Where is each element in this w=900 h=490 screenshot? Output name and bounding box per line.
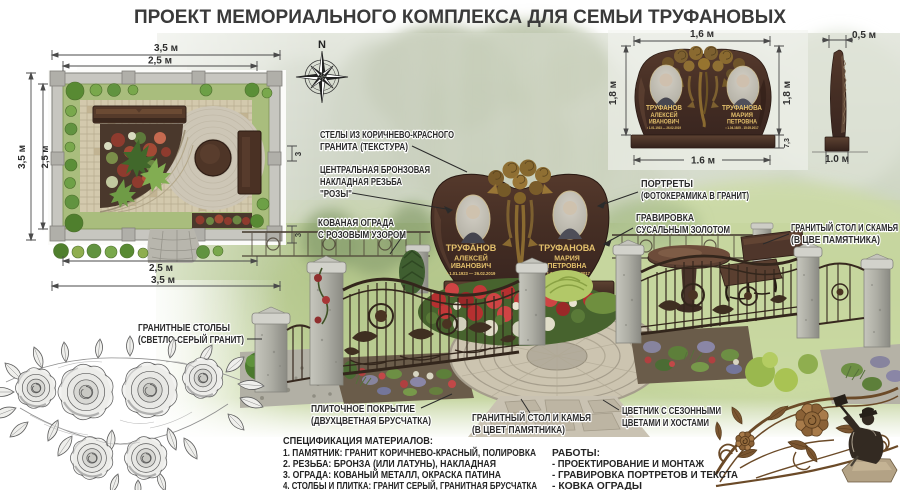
svg-text:• 1.01.1923 — 26.02.2019: • 1.01.1923 — 26.02.2019 bbox=[447, 271, 496, 276]
svg-text:(В ЦВЕ ПАМЯТНИКА): (В ЦВЕ ПАМЯТНИКА) bbox=[791, 235, 880, 246]
svg-text:- КОВКА ОГРАДЫ: - КОВКА ОГРАДЫ bbox=[552, 481, 642, 490]
svg-text:4. СТОЛБЫ И ПЛИТКА: ГРАНИТ СЕР: 4. СТОЛБЫ И ПЛИТКА: ГРАНИТ СЕРЫЙ, ГРАНИТ… bbox=[283, 479, 537, 490]
svg-text:1,8 м: 1,8 м bbox=[782, 81, 793, 105]
svg-text:ТРУФАНОВ: ТРУФАНОВ bbox=[646, 103, 682, 112]
svg-text:ТРУФАНОВА: ТРУФАНОВА bbox=[722, 103, 762, 112]
svg-text:ПЕТРОВНА: ПЕТРОВНА bbox=[727, 120, 758, 126]
svg-text:7,3: 7,3 bbox=[784, 138, 791, 148]
svg-text:(СВЕТЛО-СЕРЫЙ ГРАНИТ): (СВЕТЛО-СЕРЫЙ ГРАНИТ) bbox=[138, 333, 244, 346]
svg-text:ГРАНИТНЫЙ СТОЛ И КАМЬЯ: ГРАНИТНЫЙ СТОЛ И КАМЬЯ bbox=[472, 411, 591, 424]
svg-text:ГРАНИТНЫЕ СТОЛБЫ: ГРАНИТНЫЕ СТОЛБЫ bbox=[138, 323, 230, 334]
svg-text:1,6 м: 1,6 м bbox=[690, 29, 714, 40]
svg-text:ЦЕНТРАЛЬНАЯ БРОНЗОВАЯ: ЦЕНТРАЛЬНАЯ БРОНЗОВАЯ bbox=[320, 165, 430, 176]
svg-text:"РОЗЫ": "РОЗЫ" bbox=[320, 189, 352, 200]
svg-text:3: 3 bbox=[294, 151, 303, 156]
svg-text:РАБОТЫ:: РАБОТЫ: bbox=[552, 448, 600, 459]
svg-text:3,5 м: 3,5 м bbox=[151, 275, 175, 286]
svg-text:ТРУФАНОВ: ТРУФАНОВ bbox=[446, 243, 497, 253]
svg-text:МАРИЯ: МАРИЯ bbox=[554, 256, 580, 263]
svg-text:2,5 м: 2,5 м bbox=[148, 56, 172, 67]
svg-text:3. ОГРАДА: КОВАНЫЙ МЕТАЛЛ, ОКР: 3. ОГРАДА: КОВАНЫЙ МЕТАЛЛ, ОКРАСКА ПАТИН… bbox=[283, 468, 501, 481]
svg-text:- ГРАВИРОВКА ПОРТРЕТОВ И ТЕКСТ: - ГРАВИРОВКА ПОРТРЕТОВ И ТЕКСТА bbox=[552, 470, 738, 481]
svg-text:ИВАНОВИЧ: ИВАНОВИЧ bbox=[451, 263, 491, 270]
svg-text:ЦВЕТНИК С СЕЗОННЫМИ: ЦВЕТНИК С СЕЗОННЫМИ bbox=[622, 406, 721, 417]
svg-text:СУСАЛЬНЫМ ЗОЛОТОМ: СУСАЛЬНЫМ ЗОЛОТОМ bbox=[636, 225, 730, 236]
svg-text:N: N bbox=[318, 39, 326, 51]
svg-text:С РОЗОВЫМ УЗОРОМ: С РОЗОВЫМ УЗОРОМ bbox=[318, 230, 406, 241]
svg-text:ТРУФАНОВА: ТРУФАНОВА bbox=[539, 243, 596, 253]
svg-text:ЦВЕТАМИ И ХОСТАМИ: ЦВЕТАМИ И ХОСТАМИ bbox=[622, 418, 709, 429]
svg-text:2,5 м: 2,5 м bbox=[40, 146, 51, 169]
svg-text:АЛЕКСЕЙ: АЛЕКСЕЙ bbox=[454, 254, 488, 263]
svg-text:2. РЕЗЬБА: БРОНЗА (ИЛИ ЛАТУНЬ): 2. РЕЗЬБА: БРОНЗА (ИЛИ ЛАТУНЬ), НАКЛАДНА… bbox=[283, 459, 496, 470]
svg-text:(ДВУХЦВЕТНАЯ БРУСЧАТКА): (ДВУХЦВЕТНАЯ БРУСЧАТКА) bbox=[311, 416, 431, 427]
svg-text:1,8 м: 1,8 м bbox=[608, 81, 619, 105]
svg-text:3,5 м: 3,5 м bbox=[17, 145, 28, 169]
svg-text:ПОРТРЕТЫ: ПОРТРЕТЫ bbox=[641, 179, 693, 190]
svg-text:ПЕТРОВНА: ПЕТРОВНА bbox=[547, 263, 586, 270]
svg-text:1. ПАМЯТНИК: ГРАНИТ КОРИЧНЕВО-: 1. ПАМЯТНИК: ГРАНИТ КОРИЧНЕВО-КРАСНЫЙ, П… bbox=[283, 446, 536, 459]
svg-text:АЛЕКСЕЙ: АЛЕКСЕЙ bbox=[651, 111, 678, 119]
svg-text:0,5 м: 0,5 м bbox=[852, 30, 876, 41]
svg-text:ГРАВИРОВКА: ГРАВИРОВКА bbox=[636, 213, 694, 224]
svg-text:1.0 м: 1.0 м bbox=[825, 154, 849, 165]
svg-text:ГРАНИТА (ТЕКСТУРА): ГРАНИТА (ТЕКСТУРА) bbox=[320, 142, 408, 153]
svg-text:НАКЛАДНАЯ РЕЗЬБА: НАКЛАДНАЯ РЕЗЬБА bbox=[320, 177, 402, 188]
svg-text:• 1.04.1925 - 15.05.2017: • 1.04.1925 - 15.05.2017 bbox=[726, 126, 759, 130]
svg-text:СТЕЛЫ ИЗ КОРИЧНЕВО-КРАСНОГО: СТЕЛЫ ИЗ КОРИЧНЕВО-КРАСНОГО bbox=[320, 130, 454, 141]
svg-text:- ПРОЕКТИРОВАНИЕ И МОНТАЖ: - ПРОЕКТИРОВАНИЕ И МОНТАЖ bbox=[552, 459, 705, 470]
svg-text:ГРАНИТЫЙ СТОЛ И СКАМЬЯ: ГРАНИТЫЙ СТОЛ И СКАМЬЯ bbox=[791, 221, 898, 234]
svg-text:1.6 м: 1.6 м bbox=[691, 156, 715, 167]
svg-text:2,5 м: 2,5 м bbox=[149, 263, 173, 274]
svg-text:(ФОТОКЕРАМИКА В ГРАНИТ): (ФОТОКЕРАМИКА В ГРАНИТ) bbox=[641, 191, 749, 202]
svg-text:СПЕЦИФИКАЦИЯ МАТЕРИАЛОВ:: СПЕЦИФИКАЦИЯ МАТЕРИАЛОВ: bbox=[283, 436, 433, 447]
svg-text:КОВАНАЯ ОГРАДА: КОВАНАЯ ОГРАДА bbox=[318, 218, 394, 229]
svg-text:ПЛИТОЧНОЕ ПОКРЫТИЕ: ПЛИТОЧНОЕ ПОКРЫТИЕ bbox=[311, 404, 415, 415]
svg-text:(В ЦВЕТ ПАМЯТНИКА): (В ЦВЕТ ПАМЯТНИКА) bbox=[472, 425, 565, 436]
svg-text:МАРИЯ: МАРИЯ bbox=[731, 113, 753, 119]
svg-text:ПРОЕКТ МЕМОРИАЛЬНОГО КОМПЛЕКСА: ПРОЕКТ МЕМОРИАЛЬНОГО КОМПЛЕКСА ДЛЯ СЕМЬИ… bbox=[134, 7, 786, 28]
svg-text:ИВАНОВИЧ: ИВАНОВИЧ bbox=[649, 120, 679, 126]
svg-text:3,5 м: 3,5 м bbox=[154, 43, 178, 54]
svg-text:• 1.01.1923 — 26.02.2019: • 1.01.1923 — 26.02.2019 bbox=[647, 126, 681, 130]
